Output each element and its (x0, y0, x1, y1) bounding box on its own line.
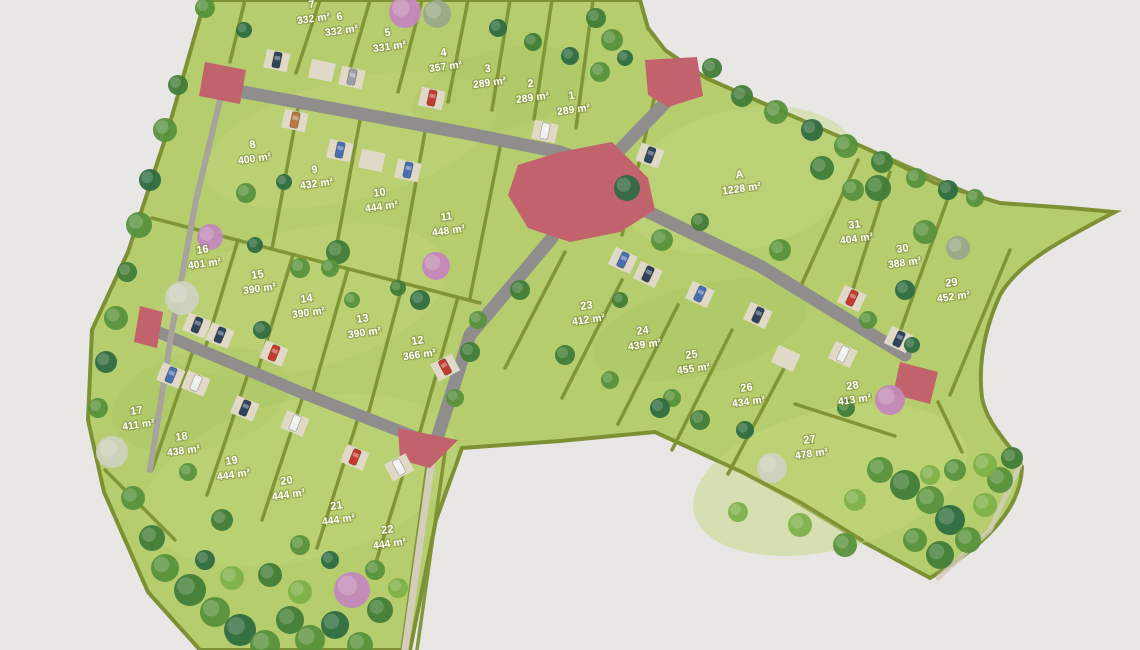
tree (139, 525, 165, 551)
plot-number: 17 (130, 404, 144, 418)
plot-number: 22 (381, 523, 395, 537)
tree (617, 50, 633, 66)
tree (153, 118, 177, 142)
tree (220, 566, 244, 590)
tree (121, 486, 145, 510)
tree (702, 58, 722, 78)
tree (842, 179, 864, 201)
plot-number: 10 (373, 186, 387, 200)
tree (801, 119, 823, 141)
plot-number: 31 (848, 218, 862, 232)
tree (117, 262, 137, 282)
tree (469, 311, 487, 329)
tree (236, 22, 252, 38)
tree (834, 134, 858, 158)
tree (200, 597, 230, 627)
tree (944, 459, 966, 481)
tree (736, 421, 754, 439)
tree (973, 453, 997, 477)
tree (586, 8, 606, 28)
plot-number: 28 (846, 379, 860, 393)
tree (236, 183, 256, 203)
tree (966, 189, 984, 207)
tree (920, 465, 940, 485)
tree (601, 29, 623, 51)
tree (195, 550, 215, 570)
tree (859, 311, 877, 329)
tree (390, 280, 406, 296)
plot-number: 11 (440, 210, 453, 224)
tree (367, 597, 393, 623)
tree (151, 554, 179, 582)
tree (973, 493, 997, 517)
tree (612, 292, 628, 308)
tree (926, 541, 954, 569)
tree (365, 560, 385, 580)
tree (489, 19, 507, 37)
tree (890, 470, 920, 500)
tree (903, 528, 927, 552)
tree (590, 62, 610, 82)
tree (875, 385, 905, 415)
tree (253, 321, 271, 339)
tree (165, 281, 199, 315)
tree (344, 292, 360, 308)
tree (938, 180, 958, 200)
tree (96, 436, 128, 468)
tree (410, 290, 430, 310)
tree (95, 351, 117, 373)
plot-number: 19 (225, 454, 239, 468)
plot-number: 13 (356, 312, 370, 326)
tree (321, 611, 349, 639)
plot-number: A (735, 169, 745, 182)
tree (388, 578, 408, 598)
tree (561, 47, 579, 65)
tree (906, 168, 926, 188)
subdivision-plan: 7332 m²6332 m²5331 m²4357 m²3289 m²2289 … (0, 0, 1140, 650)
plot-number: 26 (740, 381, 754, 395)
tree (247, 237, 263, 253)
plot-number: 18 (175, 430, 189, 444)
tree (1001, 447, 1023, 469)
tree (423, 0, 451, 28)
tree (955, 527, 981, 553)
plan-svg: 7332 m²6332 m²5331 m²4357 m²3289 m²2289 … (0, 0, 1140, 650)
tree (139, 169, 161, 191)
tree (650, 398, 670, 418)
plot-number: 25 (685, 348, 699, 362)
tree (769, 239, 791, 261)
plot-number: 20 (280, 474, 294, 488)
tree (757, 453, 787, 483)
tree (833, 533, 857, 557)
tree (867, 457, 893, 483)
tree (276, 174, 292, 190)
plot-number: 30 (896, 242, 910, 256)
tree (871, 151, 893, 173)
plot-number: 16 (196, 243, 210, 257)
tree (691, 213, 709, 231)
tree (731, 85, 753, 107)
tree (211, 509, 233, 531)
tree (913, 220, 937, 244)
tree (258, 563, 282, 587)
plot-number: 21 (330, 499, 344, 513)
tree (104, 306, 128, 330)
tree (290, 258, 310, 278)
tree (844, 489, 866, 511)
tree (290, 535, 310, 555)
tree (524, 33, 542, 51)
tree (555, 345, 575, 365)
tree (422, 252, 450, 280)
plot-number: 12 (411, 334, 425, 348)
tree (904, 337, 920, 353)
tree (601, 371, 619, 389)
tree (810, 156, 834, 180)
tree (179, 463, 197, 481)
tree (446, 389, 464, 407)
plot-number: 15 (251, 268, 265, 282)
tree (334, 572, 370, 608)
tree (88, 398, 108, 418)
tree (946, 236, 970, 260)
tree (651, 229, 673, 251)
tree (174, 574, 206, 606)
tree (460, 342, 480, 362)
plot-number: 27 (803, 433, 817, 447)
tree (321, 551, 339, 569)
tree (788, 513, 812, 537)
plot-number: 23 (580, 299, 594, 313)
tree (690, 410, 710, 430)
tree (895, 280, 915, 300)
tree (728, 502, 748, 522)
tree (126, 212, 152, 238)
plot-number: 29 (945, 276, 959, 290)
tree (614, 175, 640, 201)
tree (510, 280, 530, 300)
tree (168, 75, 188, 95)
tree (321, 259, 339, 277)
tree (764, 100, 788, 124)
tree (865, 175, 891, 201)
tree (288, 580, 312, 604)
